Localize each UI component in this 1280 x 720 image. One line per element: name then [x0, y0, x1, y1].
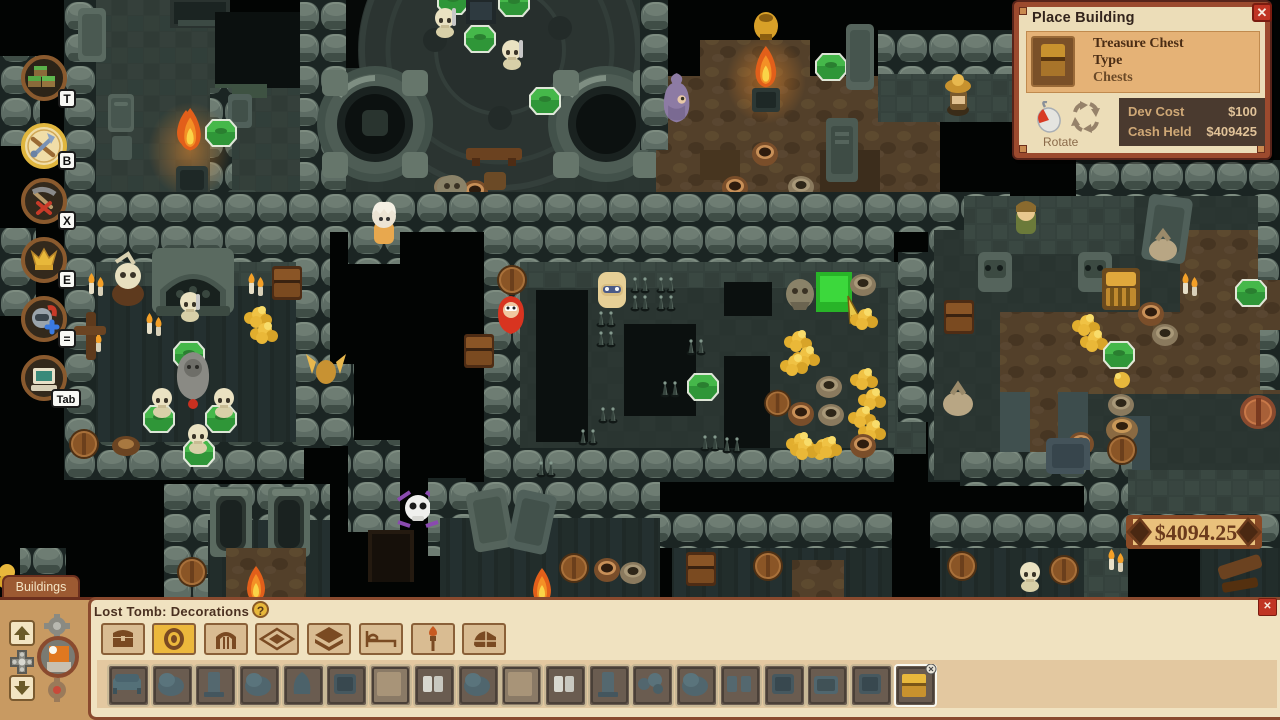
svg-text:T: T [63, 92, 71, 106]
svg-text:Tab: Tab [57, 394, 76, 406]
svg-text:B: B [63, 154, 72, 168]
svg-text:$4094.25: $4094.25 [1155, 520, 1238, 545]
svg-text:=: = [63, 332, 70, 346]
svg-text:E: E [63, 273, 71, 287]
svg-text:X: X [63, 214, 71, 228]
